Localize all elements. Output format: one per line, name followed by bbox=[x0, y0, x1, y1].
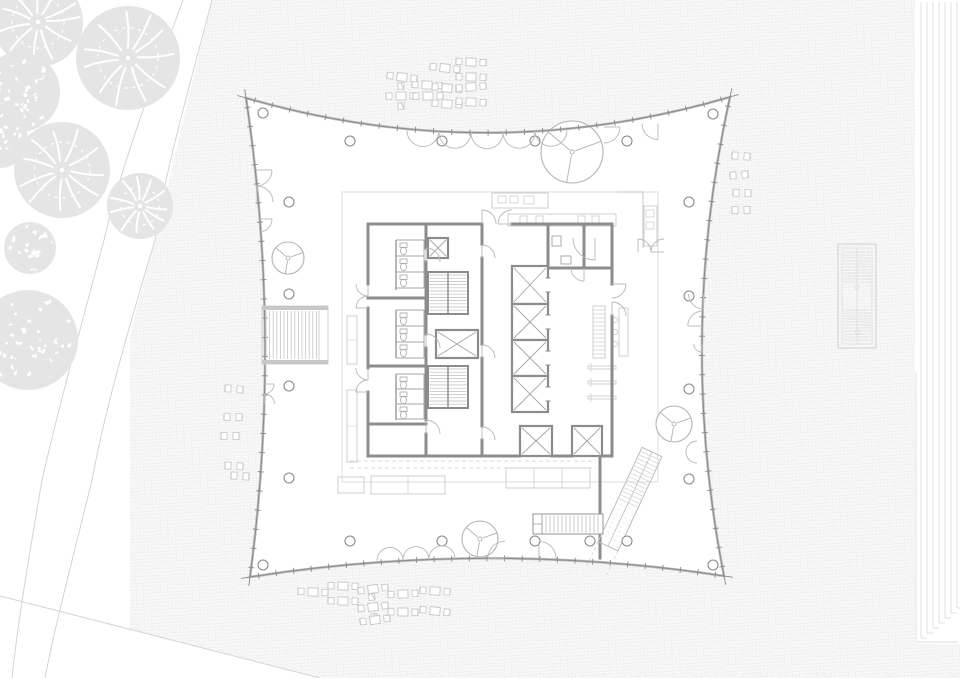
column bbox=[345, 536, 355, 546]
chair-back bbox=[460, 66, 461, 72]
column bbox=[684, 474, 694, 484]
column bbox=[258, 560, 268, 570]
slatted-bench bbox=[533, 514, 603, 534]
cafe-table bbox=[442, 84, 453, 93]
cafe-chair bbox=[456, 84, 462, 91]
cafe-table bbox=[398, 608, 408, 616]
cafe-chair bbox=[444, 588, 450, 595]
mullion-tick bbox=[645, 563, 646, 569]
mullion-tick bbox=[705, 471, 711, 472]
column bbox=[284, 197, 294, 207]
mullion-tick bbox=[255, 510, 261, 511]
cafe-chair bbox=[322, 589, 328, 596]
tree-crown bbox=[656, 406, 692, 442]
mullion-tick bbox=[346, 562, 347, 568]
chair-back bbox=[430, 63, 431, 69]
cafe-chair bbox=[398, 83, 404, 89]
cafe-table-group bbox=[456, 73, 486, 81]
atrium-tree bbox=[656, 406, 692, 442]
lounge-chair-back bbox=[750, 153, 751, 160]
cafe-chair bbox=[432, 100, 438, 107]
chair-seat bbox=[388, 591, 394, 598]
chair-seat bbox=[456, 58, 462, 65]
cafe-table-group bbox=[388, 608, 418, 616]
lounge-chair bbox=[732, 207, 738, 214]
atrium-tree bbox=[462, 521, 498, 557]
cafe-chair bbox=[430, 63, 437, 70]
cafe-table bbox=[466, 98, 476, 107]
column bbox=[708, 560, 718, 570]
chair-seat bbox=[412, 590, 418, 597]
cafe-chair bbox=[413, 93, 419, 99]
column bbox=[530, 536, 540, 546]
canopy-center bbox=[126, 56, 130, 60]
chair-seat bbox=[322, 589, 328, 596]
cafe-chair bbox=[328, 582, 334, 589]
cafe-chair bbox=[384, 615, 391, 622]
cafe-chair bbox=[480, 74, 486, 80]
chair-seat bbox=[456, 74, 462, 80]
chair-seat bbox=[420, 587, 426, 594]
elevator-door-slit bbox=[546, 278, 551, 292]
chair-seat bbox=[298, 588, 304, 595]
cafe-chair bbox=[387, 72, 394, 79]
lounge-chair-back bbox=[748, 171, 749, 178]
chair-seat bbox=[432, 100, 438, 107]
stair-rail-bottom bbox=[262, 360, 328, 364]
chair-seat bbox=[444, 588, 450, 595]
cafe-table bbox=[466, 58, 476, 67]
chair-seat bbox=[480, 59, 486, 66]
column bbox=[284, 289, 294, 299]
chair-back bbox=[358, 588, 359, 594]
cafe-table bbox=[466, 83, 477, 92]
lounge-chair bbox=[225, 462, 231, 469]
cafe-chair bbox=[432, 83, 439, 90]
floor-plan-drawing bbox=[0, 0, 960, 678]
cafe-table bbox=[368, 584, 379, 593]
chair-seat bbox=[328, 582, 334, 589]
mullion-tick bbox=[415, 127, 416, 133]
tree-canopy bbox=[4, 222, 56, 274]
cafe-table bbox=[397, 72, 408, 81]
chair-seat bbox=[412, 81, 418, 88]
lounge-chair bbox=[744, 206, 750, 213]
cafe-chair bbox=[412, 81, 418, 88]
column bbox=[684, 197, 694, 207]
mullion-tick bbox=[256, 203, 262, 204]
cafe-chair bbox=[328, 598, 334, 604]
cafe-chair bbox=[412, 609, 418, 615]
column bbox=[437, 536, 447, 546]
column bbox=[345, 136, 355, 146]
cafe-table bbox=[430, 587, 440, 596]
column bbox=[622, 536, 632, 546]
lounge-chair bbox=[745, 190, 751, 197]
column bbox=[284, 381, 294, 391]
right-strip-ground bbox=[915, 0, 960, 644]
chair-back bbox=[390, 615, 391, 621]
chair-seat bbox=[352, 598, 358, 604]
chair-seat bbox=[456, 98, 462, 105]
mullion-tick bbox=[254, 184, 260, 185]
cafe-chair bbox=[298, 588, 304, 595]
chair-back bbox=[450, 609, 451, 615]
cafe-chair bbox=[352, 583, 358, 590]
cafe-chair bbox=[398, 103, 404, 109]
tree-crown bbox=[462, 521, 498, 557]
mullion-tick bbox=[253, 529, 259, 530]
lounge-chair-back bbox=[231, 472, 232, 479]
chair-back bbox=[358, 606, 359, 612]
cafe-chair bbox=[352, 598, 358, 604]
cafe-chair bbox=[382, 602, 389, 609]
cafe-table bbox=[440, 64, 451, 73]
lounge-chair-back bbox=[732, 152, 733, 159]
cafe-chair bbox=[360, 618, 367, 625]
floor-plan-page bbox=[0, 0, 960, 678]
cafe-chair bbox=[454, 66, 461, 73]
cafe-chair bbox=[456, 98, 462, 105]
chair-seat bbox=[386, 93, 392, 99]
atrium-tree bbox=[272, 242, 304, 274]
chair-back bbox=[360, 619, 361, 625]
chair-back bbox=[388, 602, 389, 608]
cafe-chair bbox=[382, 584, 389, 591]
mullion-tick bbox=[704, 240, 710, 241]
cafe-chair bbox=[420, 606, 427, 613]
column bbox=[622, 136, 632, 146]
lounge-chair bbox=[221, 432, 227, 439]
cafe-chair bbox=[456, 58, 462, 65]
chair-seat bbox=[328, 598, 334, 604]
lounge-chair bbox=[733, 189, 739, 196]
cafe-table bbox=[422, 81, 432, 89]
cafe-chair bbox=[480, 59, 486, 66]
lounge-chair-back bbox=[730, 172, 731, 179]
cafe-table-group bbox=[328, 597, 358, 605]
column bbox=[708, 109, 718, 119]
lounge-chair bbox=[224, 413, 230, 420]
column bbox=[258, 108, 268, 118]
chair-seat bbox=[480, 99, 486, 106]
cafe-table bbox=[396, 92, 406, 100]
cafe-chair bbox=[358, 587, 365, 594]
cafe-table bbox=[398, 590, 408, 598]
chair-seat bbox=[412, 609, 418, 615]
cafe-table bbox=[308, 588, 318, 596]
tree-canopy bbox=[107, 173, 173, 239]
cafe-table bbox=[368, 602, 379, 611]
chair-seat bbox=[437, 93, 443, 99]
chair-seat bbox=[480, 74, 486, 80]
column bbox=[284, 473, 294, 483]
lounge-chair-back bbox=[225, 385, 226, 392]
cafe-chair bbox=[358, 605, 365, 612]
tree-canopy bbox=[14, 122, 110, 218]
cafe-chair bbox=[437, 93, 443, 99]
canopy-center bbox=[36, 20, 40, 24]
elevator-door-slit bbox=[546, 351, 551, 365]
cafe-chair bbox=[388, 609, 394, 615]
cafe-chair bbox=[480, 83, 486, 90]
canopy-center bbox=[138, 204, 142, 208]
lounge-chair bbox=[233, 433, 239, 440]
cafe-table bbox=[338, 597, 348, 605]
chair-back bbox=[417, 76, 418, 82]
tree-crown bbox=[272, 242, 304, 274]
chair-seat bbox=[413, 93, 419, 99]
chair-seat bbox=[388, 609, 394, 615]
cafe-table-group bbox=[328, 582, 358, 591]
cafe-table bbox=[466, 73, 476, 81]
cafe-table bbox=[430, 606, 441, 615]
lounge-chair-back bbox=[249, 473, 250, 480]
tree-canopy bbox=[76, 6, 180, 110]
cafe-table bbox=[423, 92, 433, 100]
chair-seat bbox=[352, 583, 358, 590]
mullion-tick bbox=[703, 452, 709, 453]
lounge-chair bbox=[236, 414, 242, 421]
cafe-chair bbox=[420, 587, 426, 594]
chair-back bbox=[420, 606, 421, 612]
chair-back bbox=[387, 72, 388, 78]
elevator-door-slit bbox=[546, 315, 551, 329]
cafe-chair bbox=[412, 590, 418, 597]
lounge-chair-back bbox=[243, 386, 244, 393]
mullion-tick bbox=[628, 561, 629, 567]
cafe-table bbox=[442, 100, 453, 109]
cafe-chair bbox=[386, 93, 392, 99]
mullion-tick bbox=[560, 126, 561, 132]
chair-back bbox=[388, 584, 389, 590]
cafe-chair bbox=[456, 74, 462, 80]
chair-seat bbox=[456, 84, 462, 91]
cafe-table-group bbox=[413, 92, 443, 100]
cafe-chair bbox=[411, 75, 418, 82]
cafe-table bbox=[338, 582, 348, 590]
cafe-chair bbox=[388, 591, 394, 598]
lounge-chair bbox=[237, 463, 243, 470]
chair-seat bbox=[480, 83, 486, 90]
mullion-tick bbox=[397, 125, 398, 131]
mullion-tick bbox=[328, 564, 329, 570]
cafe-table bbox=[370, 615, 381, 624]
chair-back bbox=[432, 83, 433, 89]
elevator-door-slit bbox=[546, 387, 551, 401]
cafe-chair bbox=[444, 609, 451, 616]
canopy-center bbox=[60, 168, 64, 172]
cafe-chair bbox=[480, 99, 486, 106]
column bbox=[684, 384, 694, 394]
column bbox=[585, 536, 595, 546]
stair-rail-top bbox=[262, 306, 328, 310]
cafe-chair bbox=[369, 594, 376, 601]
